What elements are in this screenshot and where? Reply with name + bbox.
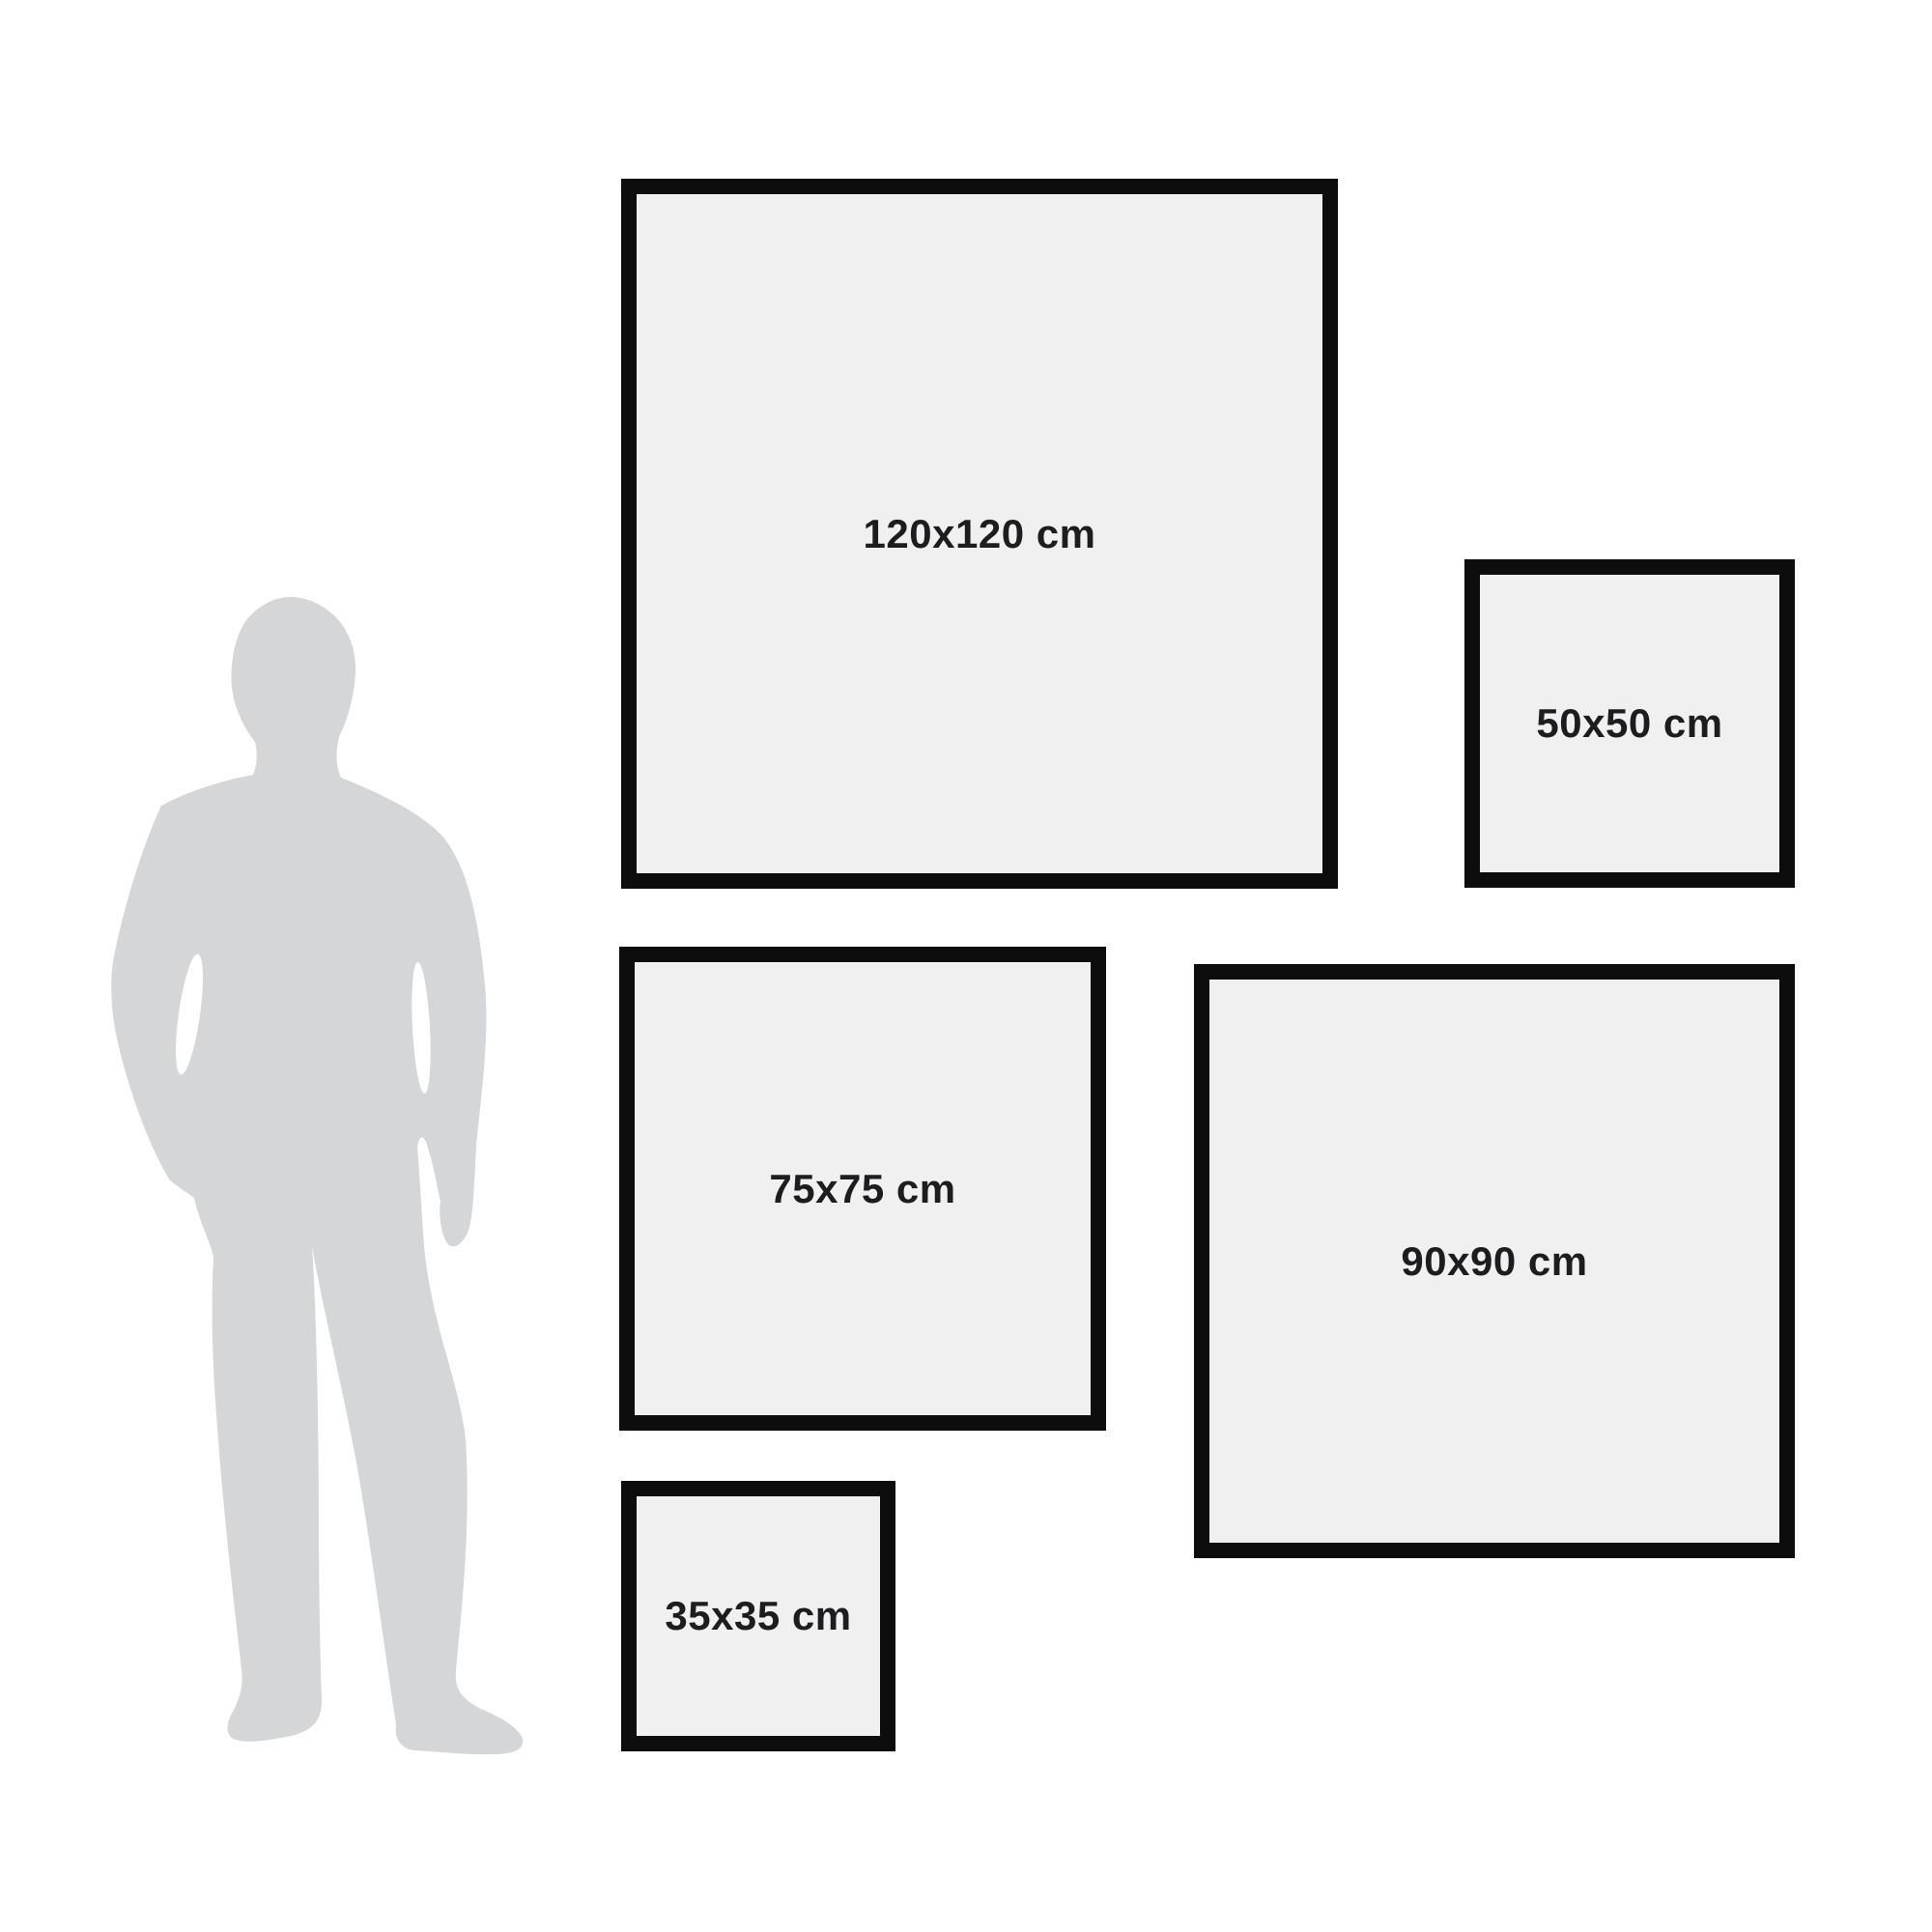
size-frame-label: 120x120 cm — [864, 511, 1096, 557]
size-frame-120x120: 120x120 cm — [621, 179, 1338, 889]
size-frame-75x75: 75x75 cm — [619, 947, 1106, 1431]
arm-body-gap-right — [409, 962, 433, 1094]
size-frame-90x90: 90x90 cm — [1194, 964, 1795, 1558]
size-frame-35x35: 35x35 cm — [621, 1481, 895, 1751]
size-frame-50x50: 50x50 cm — [1464, 559, 1795, 888]
size-guide-diagram: 120x120 cm 50x50 cm 75x75 cm 90x90 cm 35… — [0, 0, 1932, 1932]
size-frame-label: 50x50 cm — [1536, 700, 1722, 747]
size-frame-label: 75x75 cm — [769, 1166, 955, 1212]
man-silhouette-shape — [111, 597, 523, 1754]
man-silhouette-icon — [87, 580, 541, 1768]
arm-body-gap-left — [170, 952, 208, 1076]
size-frame-label: 35x35 cm — [665, 1593, 851, 1639]
size-frame-label: 90x90 cm — [1401, 1238, 1587, 1285]
